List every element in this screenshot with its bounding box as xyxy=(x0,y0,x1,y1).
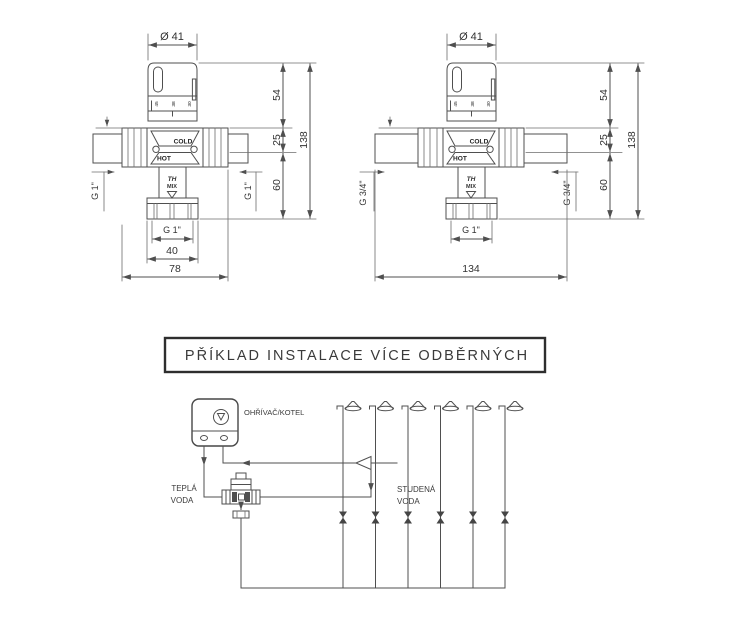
outlet-size: G 1" xyxy=(462,225,480,235)
mix-outlet: TH MIX xyxy=(147,167,198,219)
boiler: OHŘÍVAČ/KOTEL xyxy=(192,399,304,446)
cold-port-label: COLD xyxy=(470,139,489,146)
dim-54: 54 xyxy=(271,89,283,101)
inlet-left-size: G 3/4" xyxy=(358,180,368,205)
shutoff-valve-icon xyxy=(469,512,477,524)
inlet-left-label: G 3/4" xyxy=(358,117,418,211)
outlet-width: 40 xyxy=(166,245,178,257)
hot-port-label: HOT xyxy=(453,156,467,163)
inlet-left-label: G 1" xyxy=(90,117,122,211)
cold-water-label: STUDENÁ VODA xyxy=(397,485,436,506)
body-width: 78 xyxy=(169,263,181,275)
dim-60: 60 xyxy=(271,179,283,191)
mixing-valve-symbol xyxy=(222,473,260,518)
hot-port-label: HOT xyxy=(157,156,171,163)
outlet-size: G 1" xyxy=(163,225,181,235)
dim-heights: 54 25 60 138 xyxy=(199,63,316,219)
shower-head-icon xyxy=(475,402,491,411)
dim-54: 54 xyxy=(598,89,610,101)
valve-body: COLD HOT xyxy=(93,128,248,167)
installation-diagram: PŘÍKLAD INSTALACE VÍCE ODBĚRNÝCH OHŘÍVAČ… xyxy=(165,338,545,588)
mix-label-line1: TH xyxy=(168,176,177,183)
mix-label-line1: TH xyxy=(467,176,476,183)
thermostat-knob: 45 38 30 xyxy=(447,63,496,121)
shutoff-valve-icon xyxy=(372,512,380,524)
shutoff-valve-icon xyxy=(501,512,509,524)
inlet-right-label: G 1" xyxy=(240,172,262,211)
boiler-label: OHŘÍVAČ/KOTEL xyxy=(244,408,304,417)
hot-water-label: TEPLÁ VODA xyxy=(171,484,198,505)
dim-138: 138 xyxy=(298,131,310,149)
mix-label-line2: MIX xyxy=(466,184,476,190)
dim-diameter: Ø 41 xyxy=(447,31,496,60)
technical-drawing-page: Ø 41 45 38 30 xyxy=(0,0,741,630)
dim-outlet-thread: G 1" xyxy=(451,221,492,243)
valve-body: COLD HOT xyxy=(375,128,567,167)
shutoff-valve-icon xyxy=(437,512,445,524)
dim-25: 25 xyxy=(271,134,283,146)
scale-mark: 30 xyxy=(486,101,492,107)
hot-water-line2: VODA xyxy=(171,496,194,505)
shutoff-valve-icon xyxy=(404,512,412,524)
valve-drawing-g34: Ø 41 45 38 30 COLD xyxy=(358,31,644,281)
shower-riser xyxy=(402,402,426,589)
shower-riser xyxy=(435,402,459,589)
dim-138: 138 xyxy=(626,131,638,149)
diameter-label: Ø 41 xyxy=(160,31,184,43)
scale-mark: 38 xyxy=(171,101,177,107)
valve-drawing-g1: Ø 41 45 38 30 xyxy=(90,31,316,281)
hot-water-line1: TEPLÁ xyxy=(171,484,197,493)
dim-25: 25 xyxy=(598,134,610,146)
dim-outlet-thread: G 1" xyxy=(152,221,193,243)
cold-port-label: COLD xyxy=(174,139,193,146)
shower-head-icon xyxy=(410,402,426,411)
drawing-svg: Ø 41 45 38 30 xyxy=(0,0,741,630)
shower-riser xyxy=(499,402,523,589)
inlet-left-size: G 1" xyxy=(90,182,100,200)
shower-riser xyxy=(467,402,491,589)
scale-mark: 45 xyxy=(154,101,160,107)
shower-head-icon xyxy=(507,402,523,411)
shower-head-icon xyxy=(443,402,459,411)
mix-outlet: TH MIX xyxy=(446,167,497,219)
thermostat-knob: 45 38 30 xyxy=(148,63,197,121)
cold-water-line1: STUDENÁ xyxy=(397,485,436,494)
shutoff-valve-icon xyxy=(339,512,347,524)
inlet-right-size: G 1" xyxy=(243,182,253,200)
cold-water-line2: VODA xyxy=(397,497,420,506)
dim-diameter: Ø 41 xyxy=(148,31,197,60)
title-box: PŘÍKLAD INSTALACE VÍCE ODBĚRNÝCH xyxy=(165,338,545,372)
diameter-label: Ø 41 xyxy=(459,31,483,43)
shower-riser xyxy=(337,402,361,589)
body-width: 134 xyxy=(462,263,480,275)
mix-label-line2: MIX xyxy=(167,184,177,190)
scale-mark: 45 xyxy=(453,101,459,107)
shower-head-icon xyxy=(345,402,361,411)
shower-riser xyxy=(370,402,394,589)
dim-60: 60 xyxy=(598,179,610,191)
installation-title: PŘÍKLAD INSTALACE VÍCE ODBĚRNÝCH xyxy=(185,347,529,364)
inlet-right-label: G 3/4" xyxy=(552,172,578,211)
shower-head-icon xyxy=(378,402,394,411)
scale-mark: 30 xyxy=(187,101,193,107)
scale-mark: 38 xyxy=(470,101,476,107)
check-valve-icon xyxy=(356,457,371,470)
